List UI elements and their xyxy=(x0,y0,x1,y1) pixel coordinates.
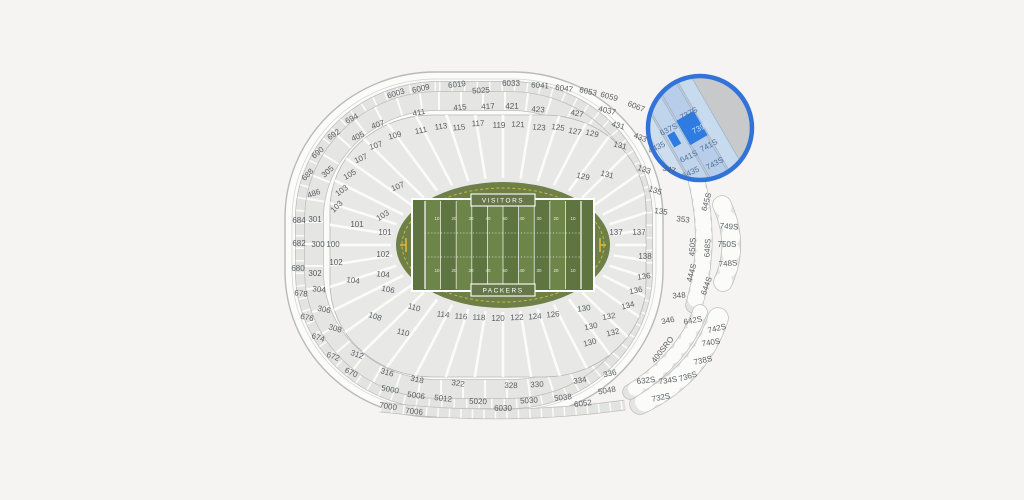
section-label-328[interactable]: 328 xyxy=(504,382,517,390)
section-label-135[interactable]: 135 xyxy=(647,185,662,197)
yard-number-50: 50 xyxy=(502,217,507,222)
section-label-131[interactable]: 131 xyxy=(600,170,615,181)
section-label-130[interactable]: 130 xyxy=(577,304,591,314)
section-label-4435[interactable]: 4435 xyxy=(647,141,667,156)
section-label-423[interactable]: 423 xyxy=(531,106,545,115)
yard-number-30: 30 xyxy=(468,269,473,274)
section-label-6019[interactable]: 6019 xyxy=(448,80,467,90)
section-label-107[interactable]: 107 xyxy=(368,140,383,152)
section-label-688[interactable]: 688 xyxy=(300,167,315,182)
section-label-431[interactable]: 431 xyxy=(610,120,625,131)
seating-chart-canvas: VISITORS PACKERS 60036009601950256033604… xyxy=(0,0,1024,500)
section-label-641S[interactable]: 641S xyxy=(679,149,699,164)
section-label-129[interactable]: 129 xyxy=(576,172,591,183)
section-label-346[interactable]: 346 xyxy=(661,316,676,327)
section-label-6059[interactable]: 6059 xyxy=(599,91,618,104)
section-label-4037[interactable]: 4037 xyxy=(597,105,616,117)
section-label-5000[interactable]: 5000 xyxy=(381,384,400,395)
section-label-132[interactable]: 132 xyxy=(606,328,621,339)
section-label-405[interactable]: 405 xyxy=(350,131,365,144)
section-label-135[interactable]: 135 xyxy=(654,207,668,217)
section-label-743S[interactable]: 743S xyxy=(705,156,725,172)
section-label-103[interactable]: 103 xyxy=(334,184,350,198)
yard-number-30: 30 xyxy=(468,217,473,222)
section-labels-layer: 6003600960195025603360416047605360596067… xyxy=(0,0,1024,500)
section-label-740S[interactable]: 740S xyxy=(701,338,721,349)
section-label-694[interactable]: 694 xyxy=(344,112,360,125)
yard-number-40: 40 xyxy=(485,217,490,222)
yard-number-40: 40 xyxy=(485,269,490,274)
section-label-330[interactable]: 330 xyxy=(530,381,544,390)
section-label-107[interactable]: 107 xyxy=(353,153,368,166)
section-label-645S[interactable]: 645S xyxy=(701,192,714,212)
yard-number-50: 50 xyxy=(502,269,507,274)
section-label-130[interactable]: 130 xyxy=(584,322,599,333)
section-label-138[interactable]: 138 xyxy=(638,253,651,261)
section-label-130[interactable]: 130 xyxy=(583,337,598,348)
section-label-417[interactable]: 417 xyxy=(481,103,495,112)
section-label-670[interactable]: 670 xyxy=(343,367,358,380)
yard-number-20: 20 xyxy=(553,269,558,274)
section-label-100[interactable]: 100 xyxy=(326,241,339,249)
section-label-738S[interactable]: 738S xyxy=(693,355,713,367)
section-label-5020[interactable]: 5020 xyxy=(469,398,487,407)
section-label-5012[interactable]: 5012 xyxy=(434,394,453,404)
section-label-336[interactable]: 336 xyxy=(603,369,618,380)
section-label-115[interactable]: 115 xyxy=(452,123,465,132)
section-label-6053[interactable]: 6053 xyxy=(578,86,597,98)
section-label-433[interactable]: 433 xyxy=(632,132,647,144)
section-label-103[interactable]: 103 xyxy=(375,209,391,223)
section-label-122[interactable]: 122 xyxy=(510,314,524,322)
section-label-111[interactable]: 111 xyxy=(414,126,427,136)
section-label-101[interactable]: 101 xyxy=(350,221,363,229)
section-label-104[interactable]: 104 xyxy=(376,270,390,279)
section-label-125[interactable]: 125 xyxy=(551,123,565,133)
section-label-119[interactable]: 119 xyxy=(493,122,506,130)
yard-number-20: 20 xyxy=(451,217,456,222)
section-label-304[interactable]: 304 xyxy=(312,285,326,294)
section-label-126[interactable]: 126 xyxy=(546,310,560,319)
section-label-5025[interactable]: 5025 xyxy=(472,87,490,96)
section-label-348[interactable]: 348 xyxy=(672,292,686,301)
section-label-302[interactable]: 302 xyxy=(308,270,321,278)
section-label-137[interactable]: 137 xyxy=(609,229,622,237)
section-label-737S[interactable]: 737S xyxy=(679,106,699,122)
yard-number-10: 10 xyxy=(570,217,575,222)
section-label-6009[interactable]: 6009 xyxy=(411,83,430,95)
section-label-411[interactable]: 411 xyxy=(412,108,426,118)
yard-number-20: 20 xyxy=(553,217,558,222)
section-label-682[interactable]: 682 xyxy=(292,240,305,248)
section-label-107[interactable]: 107 xyxy=(390,181,405,193)
section-label-109[interactable]: 109 xyxy=(388,130,403,141)
section-label-312[interactable]: 312 xyxy=(349,349,364,361)
section-label-120[interactable]: 120 xyxy=(491,315,504,323)
section-label-450S[interactable]: 450S xyxy=(689,237,698,256)
section-label-306[interactable]: 306 xyxy=(317,305,332,316)
section-label-316[interactable]: 316 xyxy=(379,367,394,379)
section-label-741S[interactable]: 741S xyxy=(699,138,719,154)
section-label-6033[interactable]: 6033 xyxy=(502,80,520,88)
section-label-110[interactable]: 110 xyxy=(396,328,410,339)
yard-number-10: 10 xyxy=(434,269,439,274)
section-label-5038[interactable]: 5038 xyxy=(554,393,573,403)
section-label-101[interactable]: 101 xyxy=(378,229,391,237)
section-label-123[interactable]: 123 xyxy=(532,123,546,132)
section-label-644S[interactable]: 644S xyxy=(700,276,714,296)
section-label-739S[interactable]: 739S xyxy=(691,120,711,136)
section-label-305[interactable]: 305 xyxy=(320,165,335,180)
section-label-637S[interactable]: 637S xyxy=(659,122,679,137)
section-label-427[interactable]: 427 xyxy=(570,109,584,119)
section-label-353[interactable]: 353 xyxy=(676,215,690,224)
section-label-129[interactable]: 129 xyxy=(585,129,600,140)
section-label-748S[interactable]: 748S xyxy=(718,259,737,268)
section-label-132[interactable]: 132 xyxy=(602,312,617,322)
section-label-400SRO[interactable]: 400SRO xyxy=(650,335,675,364)
yard-number-20: 20 xyxy=(451,269,456,274)
yard-number-30: 30 xyxy=(536,217,541,222)
section-label-108[interactable]: 108 xyxy=(367,311,382,323)
section-label-133[interactable]: 133 xyxy=(636,164,651,176)
section-label-407[interactable]: 407 xyxy=(370,119,385,131)
section-label-322[interactable]: 322 xyxy=(451,379,465,389)
section-label-136[interactable]: 136 xyxy=(637,272,651,282)
yard-number-40: 40 xyxy=(519,269,524,274)
section-label-6047[interactable]: 6047 xyxy=(555,84,574,94)
section-label-6030[interactable]: 6030 xyxy=(494,405,512,413)
section-label-318[interactable]: 318 xyxy=(410,375,425,386)
section-label-110[interactable]: 110 xyxy=(407,302,421,313)
section-label-6003[interactable]: 6003 xyxy=(386,87,405,100)
section-label-734S[interactable]: 734S xyxy=(658,376,678,387)
yard-number-40: 40 xyxy=(519,217,524,222)
section-label-678[interactable]: 678 xyxy=(294,289,308,298)
section-label-114[interactable]: 114 xyxy=(436,310,450,319)
section-label-749S[interactable]: 749S xyxy=(719,222,738,231)
section-label-680[interactable]: 680 xyxy=(291,265,304,273)
yard-number-10: 10 xyxy=(570,269,575,274)
section-label-116[interactable]: 116 xyxy=(454,313,467,322)
section-label-674[interactable]: 674 xyxy=(310,332,325,344)
section-label-6067[interactable]: 6067 xyxy=(626,100,645,114)
section-label-486[interactable]: 486 xyxy=(306,188,321,200)
section-label-7000[interactable]: 7000 xyxy=(379,402,398,413)
section-label-672[interactable]: 672 xyxy=(325,351,340,363)
section-label-118[interactable]: 118 xyxy=(472,314,485,322)
section-label-742S[interactable]: 742S xyxy=(707,323,727,335)
section-label-6052[interactable]: 6052 xyxy=(574,399,593,409)
section-label-5006[interactable]: 5006 xyxy=(407,391,426,401)
section-label-334[interactable]: 334 xyxy=(573,376,587,386)
section-label-648S[interactable]: 648S xyxy=(704,238,713,257)
section-label-421[interactable]: 421 xyxy=(505,103,518,111)
section-label-736S[interactable]: 736S xyxy=(678,370,698,383)
section-label-5048[interactable]: 5048 xyxy=(598,386,617,397)
section-label-684[interactable]: 684 xyxy=(292,217,305,225)
section-label-415[interactable]: 415 xyxy=(453,103,467,112)
section-label-103[interactable]: 103 xyxy=(329,199,344,214)
section-label-301[interactable]: 301 xyxy=(308,216,321,224)
section-label-113[interactable]: 113 xyxy=(434,122,448,132)
section-label-642S[interactable]: 642S xyxy=(683,315,703,326)
section-label-300[interactable]: 300 xyxy=(311,241,324,249)
section-label-692[interactable]: 692 xyxy=(326,128,342,142)
section-label-105[interactable]: 105 xyxy=(342,168,358,182)
section-label-102[interactable]: 102 xyxy=(329,259,342,267)
section-label-121[interactable]: 121 xyxy=(511,121,525,129)
yard-number-10: 10 xyxy=(434,217,439,222)
section-label-6041[interactable]: 6041 xyxy=(531,81,549,90)
yard-number-30: 30 xyxy=(536,269,541,274)
section-label-308[interactable]: 308 xyxy=(327,323,342,334)
section-label-690[interactable]: 690 xyxy=(310,146,325,161)
section-label-134[interactable]: 134 xyxy=(621,300,636,311)
section-label-7006[interactable]: 7006 xyxy=(405,407,424,417)
section-label-137[interactable]: 137 xyxy=(632,229,645,237)
section-label-131[interactable]: 131 xyxy=(613,141,628,152)
section-label-444S[interactable]: 444S xyxy=(686,263,699,283)
section-label-347[interactable]: 347 xyxy=(662,165,677,176)
section-label-5030[interactable]: 5030 xyxy=(520,397,538,406)
section-label-6435[interactable]: 6435 xyxy=(681,166,701,181)
section-label-106[interactable]: 106 xyxy=(381,285,396,296)
section-label-127[interactable]: 127 xyxy=(568,127,583,137)
section-label-104[interactable]: 104 xyxy=(346,276,360,286)
section-label-732S[interactable]: 732S xyxy=(651,392,671,403)
section-label-102[interactable]: 102 xyxy=(376,251,389,259)
section-label-124[interactable]: 124 xyxy=(528,313,542,322)
section-label-117[interactable]: 117 xyxy=(471,120,484,128)
section-label-136[interactable]: 136 xyxy=(629,286,644,297)
section-label-750S[interactable]: 750S xyxy=(718,241,737,249)
section-label-676[interactable]: 676 xyxy=(300,313,315,324)
section-label-632S[interactable]: 632S xyxy=(636,376,656,386)
